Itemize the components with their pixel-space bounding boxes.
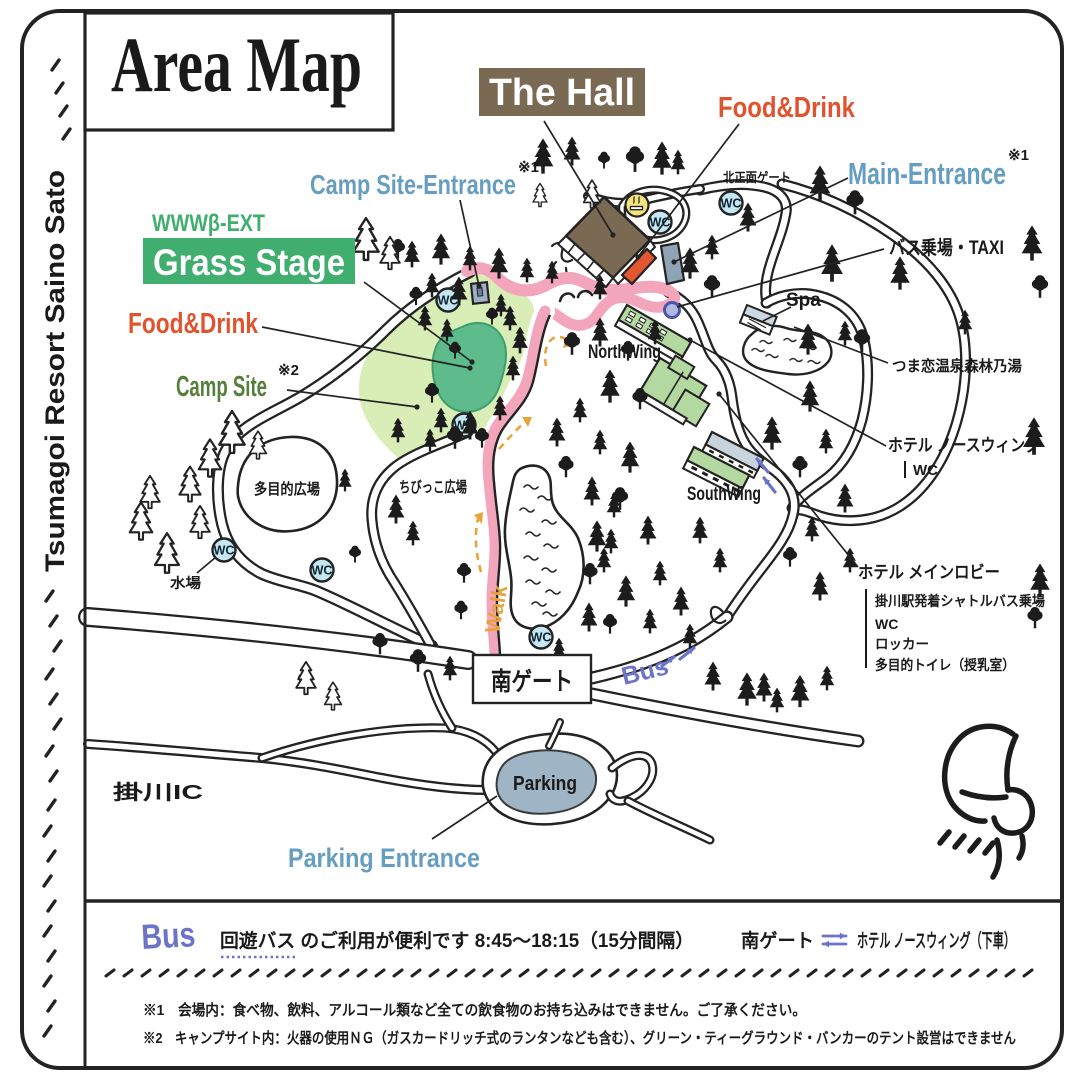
svg-text:ホテル メインロビー: ホテル メインロビー bbox=[858, 563, 1000, 582]
svg-text:Main-Entrance: Main-Entrance bbox=[848, 156, 1006, 191]
svg-text:つま恋温泉森林乃湯: つま恋温泉森林乃湯 bbox=[892, 357, 1022, 375]
svg-text:ホテル ノースウィング（下車）: ホテル ノースウィング（下車） bbox=[857, 929, 1015, 952]
svg-text:SouthWing: SouthWing bbox=[687, 484, 761, 505]
svg-text:水場: 水場 bbox=[170, 575, 201, 591]
svg-text:ホテル ノースウィング: ホテル ノースウィング bbox=[888, 435, 1040, 455]
svg-text:Food&Drink: Food&Drink bbox=[718, 92, 856, 124]
svg-text:NorthWing: NorthWing bbox=[588, 342, 661, 363]
svg-text:Area Map: Area Map bbox=[111, 21, 362, 108]
svg-text:掛川IC: 掛川IC bbox=[113, 780, 203, 804]
svg-text:Camp Site: Camp Site bbox=[176, 371, 267, 403]
svg-text:WWWβ-EXT: WWWβ-EXT bbox=[152, 210, 265, 237]
svg-text:※2: ※2 bbox=[278, 362, 299, 379]
svg-text:Grass Stage: Grass Stage bbox=[153, 242, 345, 283]
svg-text:※1 会場内：食べ物、飲料、アルコール類など全ての飲食物のお: ※1 会場内：食べ物、飲料、アルコール類など全ての飲食物のお持ち込みはできません… bbox=[143, 1001, 806, 1019]
svg-text:Parking Entrance: Parking Entrance bbox=[288, 843, 480, 873]
svg-text:Spa: Spa bbox=[786, 290, 821, 311]
svg-text:バス乗場・TAXI: バス乗場・TAXI bbox=[889, 237, 1004, 259]
svg-text:掛川駅発着シャトルバス乗場: 掛川駅発着シャトルバス乗場 bbox=[875, 593, 1045, 609]
svg-text:Food&Drink: Food&Drink bbox=[128, 308, 259, 340]
svg-text:The Hall: The Hall bbox=[489, 72, 635, 114]
svg-text:北正面ゲート: 北正面ゲート bbox=[723, 170, 791, 185]
svg-text:南ゲート: 南ゲート bbox=[741, 930, 814, 952]
svg-text:Tsumagoi Resort Saino Sato: Tsumagoi Resort Saino Sato bbox=[40, 170, 70, 572]
svg-text:ちびっこ広場: ちびっこ広場 bbox=[399, 478, 467, 496]
svg-text:※2 キャンプサイト内：火器の使用ＮＧ（ガスカードリッチ式の: ※2 キャンプサイト内：火器の使用ＮＧ（ガスカードリッチ式のランタンなども含む）… bbox=[143, 1029, 1016, 1047]
svg-text:多目的トイレ（授乳室）: 多目的トイレ（授乳室） bbox=[875, 657, 1015, 673]
svg-text:回遊バス のご利用が便利です 8:45～18:15（15分: 回遊バス のご利用が便利です 8:45～18:15（15分間隔） bbox=[220, 929, 694, 952]
svg-text:Camp Site-Entrance: Camp Site-Entrance bbox=[310, 169, 516, 200]
svg-text:※1: ※1 bbox=[518, 159, 539, 176]
svg-text:WC: WC bbox=[875, 616, 898, 632]
svg-text:多目的広場: 多目的広場 bbox=[254, 480, 320, 498]
svg-text:ロッカー: ロッカー bbox=[875, 636, 929, 652]
svg-text:南ゲート: 南ゲート bbox=[491, 668, 573, 696]
svg-text:Parking: Parking bbox=[513, 773, 577, 795]
svg-text:※1: ※1 bbox=[1008, 147, 1029, 164]
svg-text:Bus: Bus bbox=[140, 915, 196, 957]
svg-text:WC: WC bbox=[913, 462, 938, 479]
